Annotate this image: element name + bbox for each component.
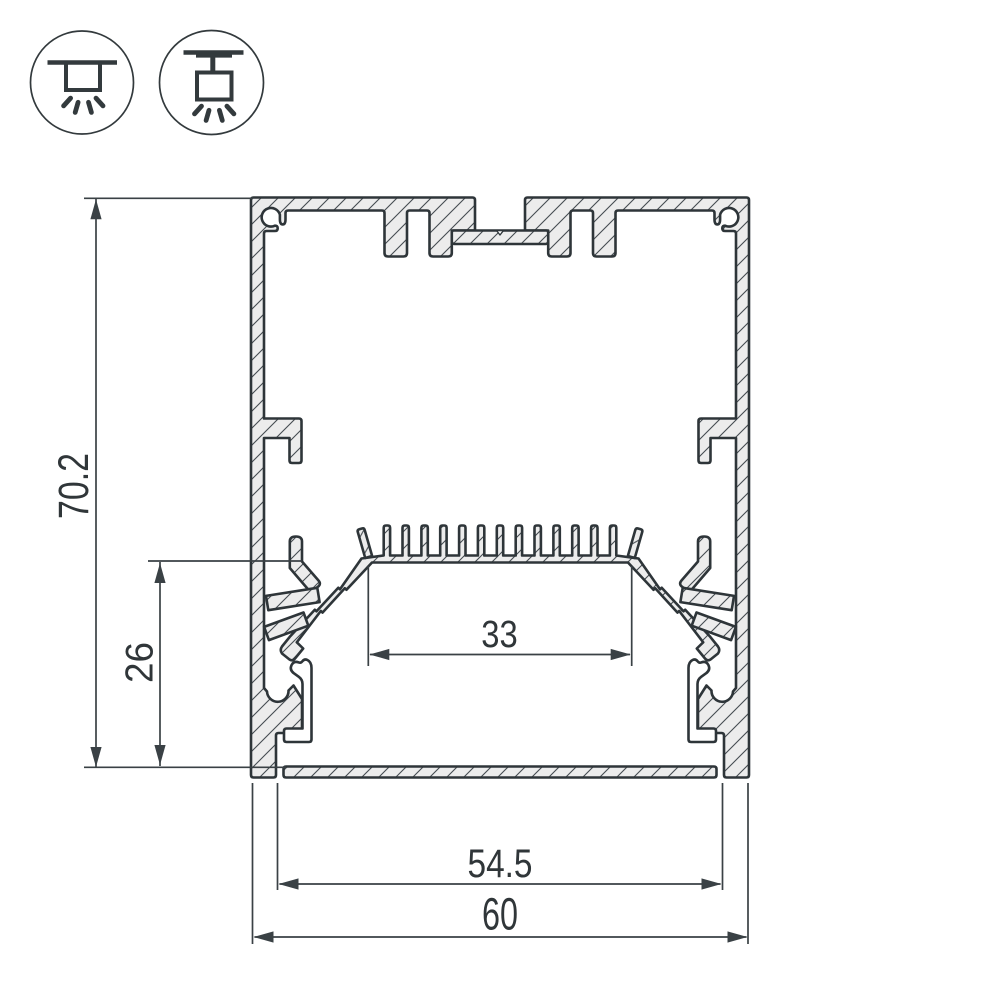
svg-text:33: 33 bbox=[481, 614, 518, 656]
svg-text:70.2: 70.2 bbox=[50, 453, 98, 519]
svg-text:26: 26 bbox=[119, 642, 162, 683]
svg-text:54.5: 54.5 bbox=[468, 842, 533, 886]
svg-text:60: 60 bbox=[482, 889, 518, 940]
